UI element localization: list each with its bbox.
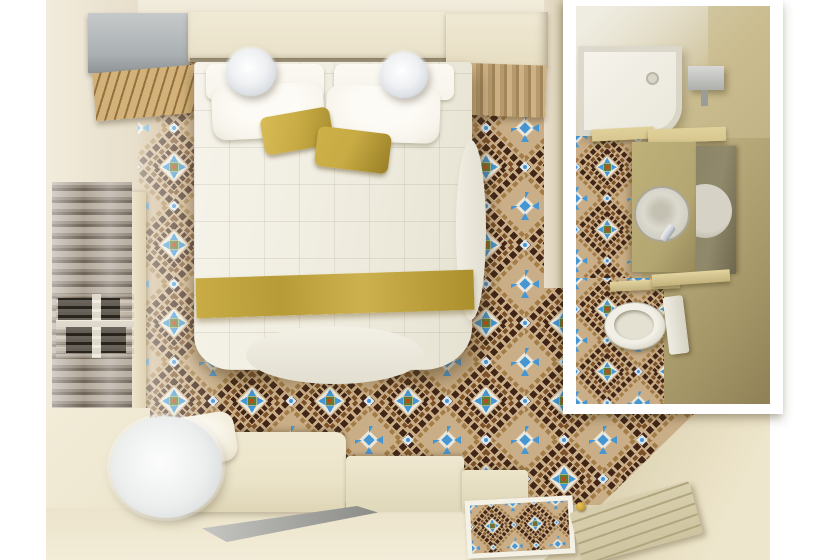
doormat-tiles bbox=[470, 500, 570, 553]
vanity-counter bbox=[648, 127, 726, 144]
toilet-seat bbox=[614, 310, 654, 340]
vanity-mirror bbox=[696, 146, 736, 274]
duvet-foot-fold bbox=[246, 326, 424, 384]
shower-drain bbox=[646, 72, 659, 85]
mirror-reflection bbox=[696, 184, 732, 238]
gray-wardrobe bbox=[88, 13, 190, 73]
shower-tray bbox=[578, 46, 682, 136]
fluffy-rug bbox=[110, 416, 222, 518]
sheer-curtain-overlay bbox=[56, 294, 134, 358]
wall-sconce bbox=[688, 66, 724, 90]
door-knob bbox=[576, 502, 585, 511]
sconce-stem bbox=[701, 90, 708, 106]
cream-closet bbox=[446, 12, 548, 68]
sphere-lamp bbox=[226, 48, 276, 96]
sphere-lamp bbox=[380, 52, 428, 98]
render-canvas: Top-down 3D render of a hotel guest room… bbox=[0, 0, 820, 560]
tiled-doormat bbox=[465, 495, 576, 559]
console-slab bbox=[346, 456, 464, 512]
